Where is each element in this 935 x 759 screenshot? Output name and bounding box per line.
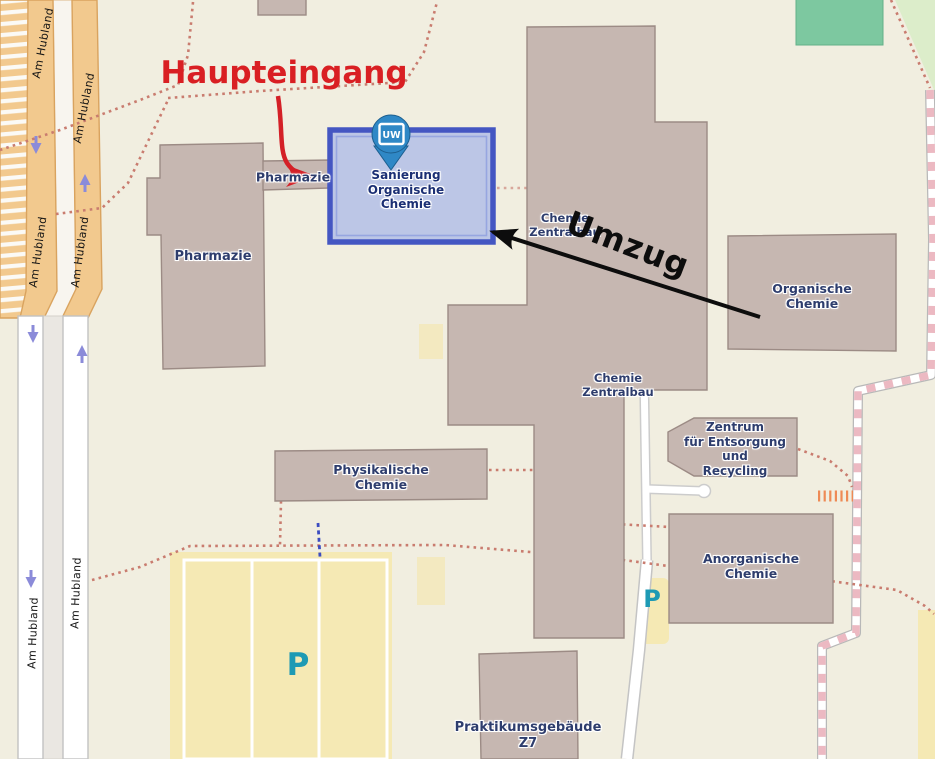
highlighted-building-sanierung [330,130,493,242]
green-areas [796,0,935,92]
uni-logo-text: UW [382,130,401,141]
building-zentrum-entsorgung [668,418,797,476]
building-organische-chemie [728,234,896,351]
building-anorganische-chemie [669,514,833,623]
parking-symbol-main: P [287,647,310,683]
building-praktikumsgebaeude [479,651,578,759]
building-physikalische-chemie [275,449,487,501]
building-small-top [258,0,306,15]
blue-dashed-path [318,523,320,557]
annotation-haupteingang: Haupteingang [160,55,407,91]
map-graphics: UW [0,0,935,759]
construction-road [818,90,933,759]
building-chemie-zentralbau [448,26,707,638]
street-am-hubland [0,0,102,759]
campus-map: UW Sanierung Organische Chemie Pharmazie… [0,0,935,759]
building-pharmazie [147,143,265,369]
parking-symbol-small: P [643,585,661,613]
